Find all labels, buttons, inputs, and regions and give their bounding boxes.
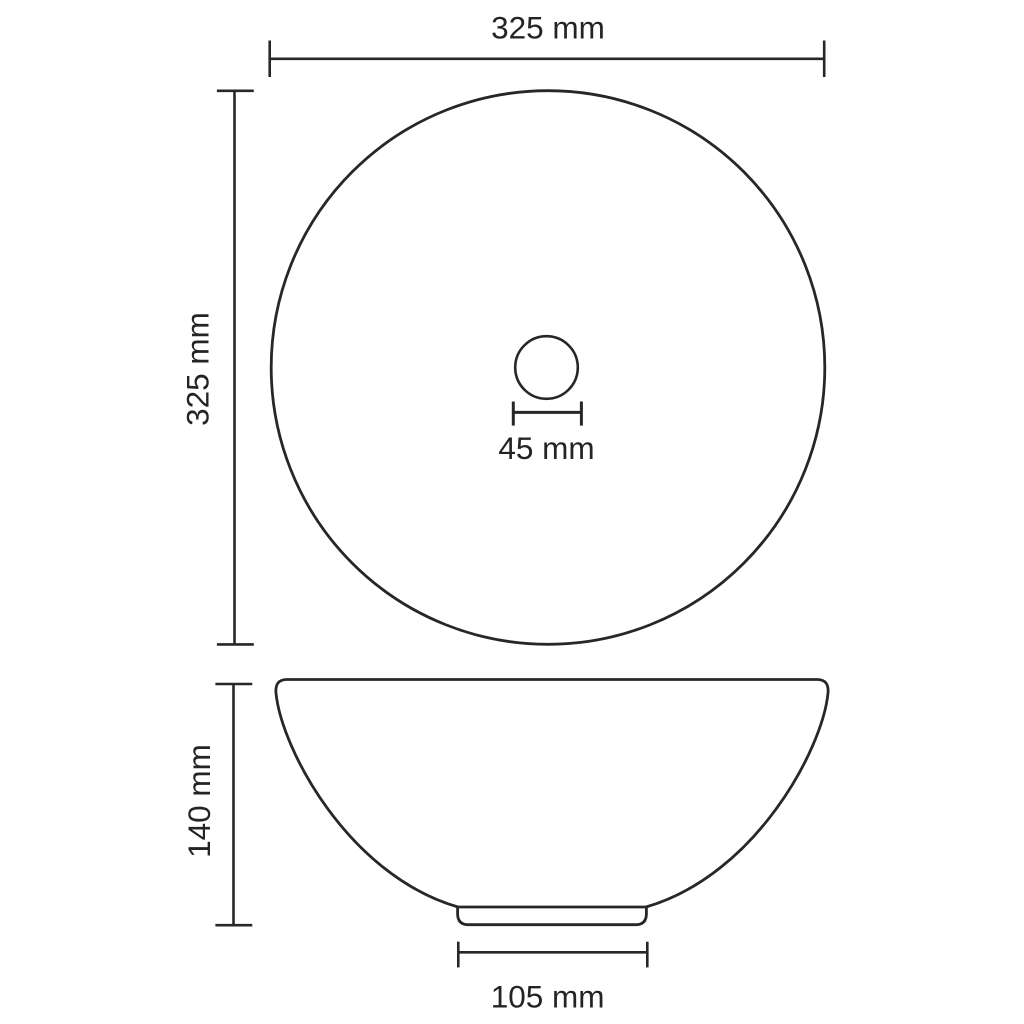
svg-text:325 mm: 325 mm <box>180 312 216 426</box>
svg-text:325 mm: 325 mm <box>491 10 605 46</box>
svg-text:45 mm: 45 mm <box>498 430 594 466</box>
svg-text:140 mm: 140 mm <box>181 744 217 858</box>
svg-text:105 mm: 105 mm <box>491 979 605 1015</box>
